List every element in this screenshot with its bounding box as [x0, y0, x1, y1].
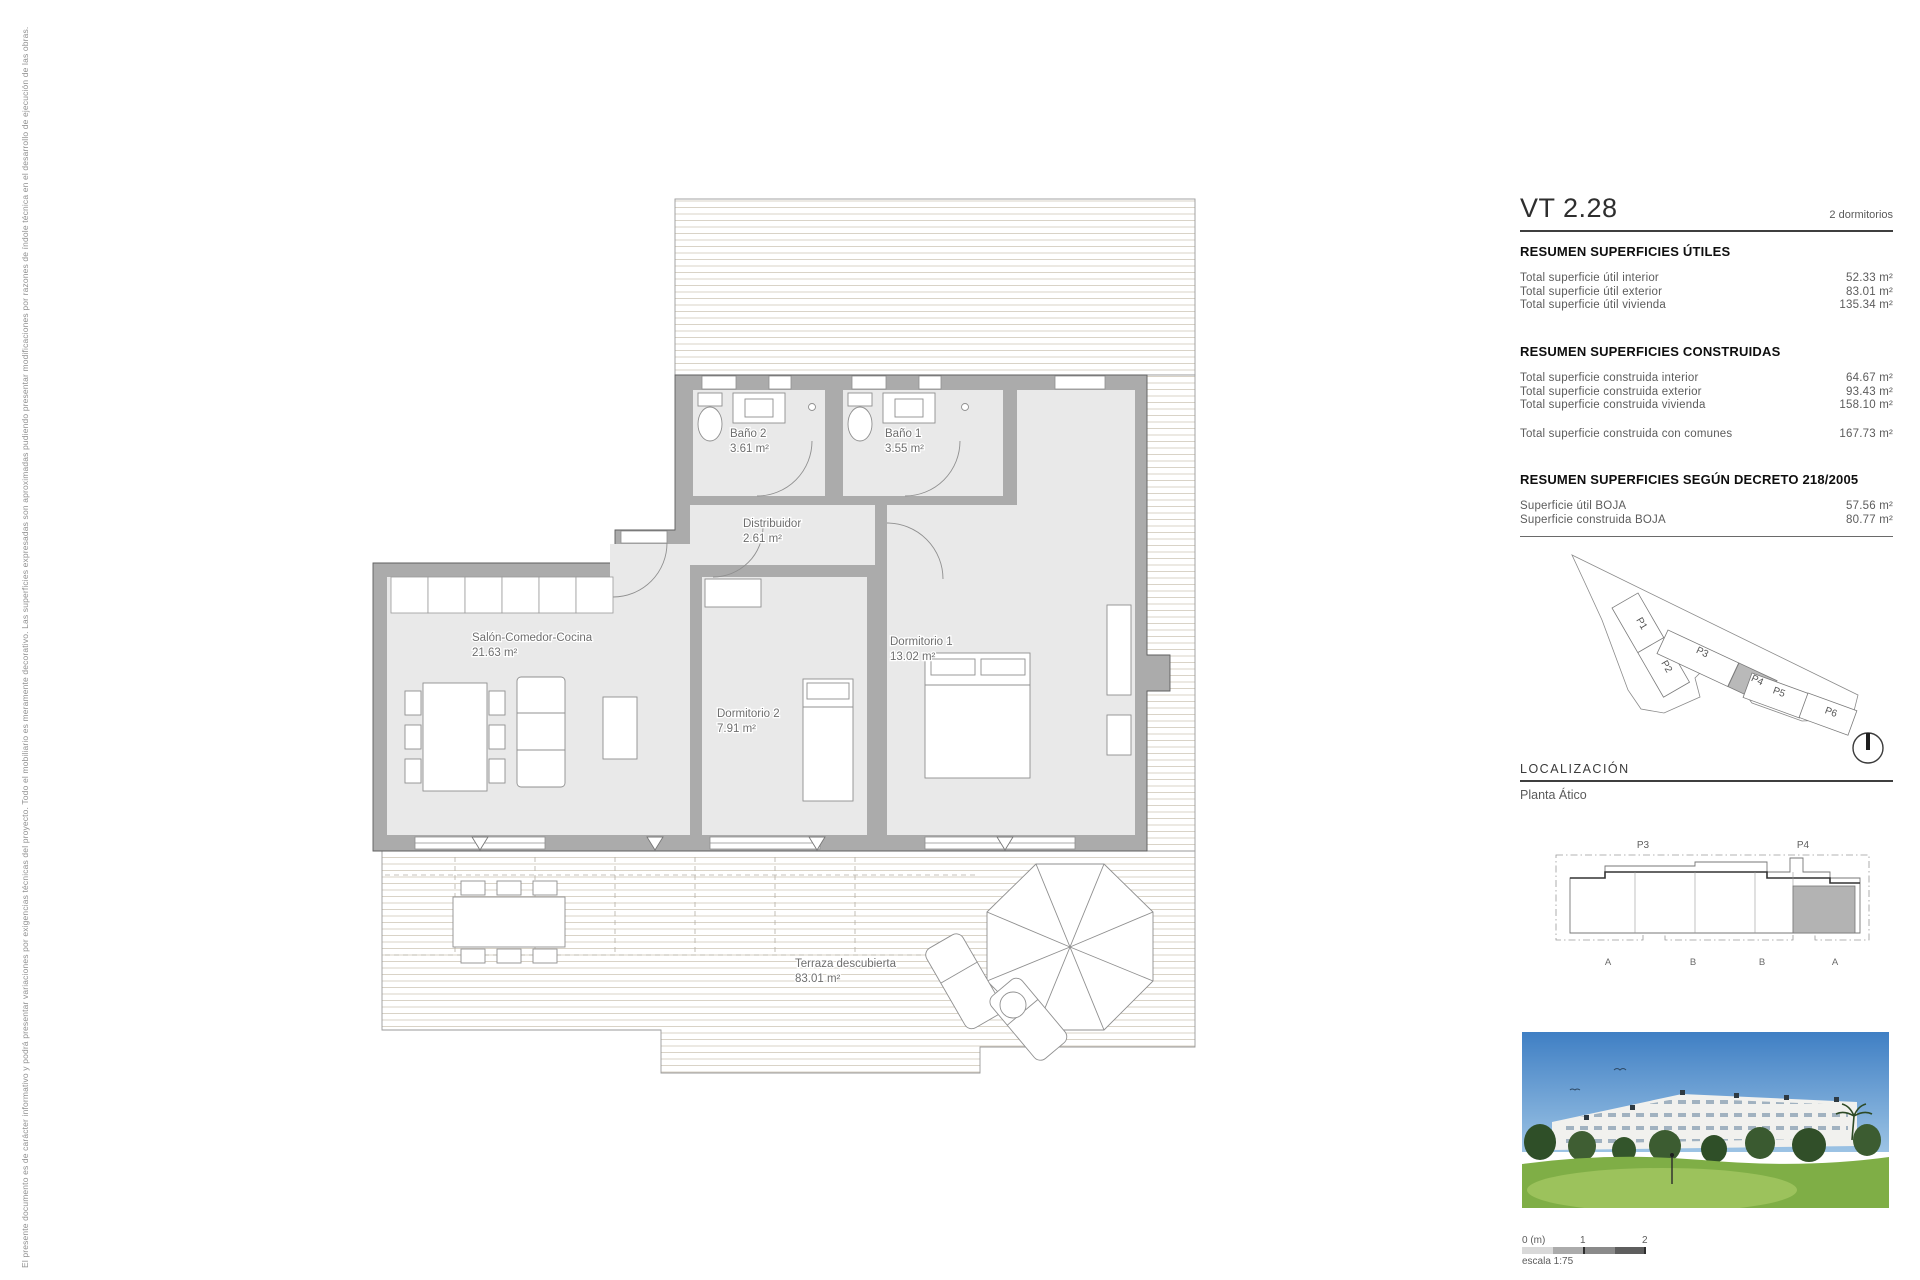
label-dormitorio2-name: Dormitorio 2: [717, 708, 780, 720]
terrace-right-strip: [1147, 375, 1195, 851]
localizacion-title: LOCALIZACIÓN: [1520, 762, 1630, 776]
construidas-rows: Total superficie construida interior64.6…: [1520, 372, 1893, 413]
row-label: Total superficie útil interior: [1520, 272, 1659, 286]
block-label-p4: P4: [1797, 840, 1810, 851]
kitchen-cabinets: [391, 577, 613, 613]
table-row: Superficie construida BOJA80.77 m²: [1520, 514, 1893, 528]
row-label: Superficie útil BOJA: [1520, 500, 1626, 514]
row-label: Total superficie construida vivienda: [1520, 399, 1706, 413]
scale-bar-graphic: [1522, 1247, 1648, 1254]
section-label-b2: B: [1759, 957, 1765, 968]
floor-plan: Baño 2 3.61 m² Baño 1 3.55 m² Distribuid…: [365, 185, 1235, 1085]
row-label: Total superficie construida exterior: [1520, 386, 1702, 400]
dining-table: [405, 683, 505, 791]
row-value: 64.67 m²: [1846, 372, 1893, 386]
section-title-decreto: RESUMEN SUPERFICIES SEGÚN DECRETO 218/20…: [1520, 472, 1858, 487]
scale-mid: 1: [1580, 1235, 1586, 1246]
row-label: Superficie construida BOJA: [1520, 514, 1666, 528]
entrance-opening: [621, 531, 667, 543]
room-dormitorio1-closet: [1017, 390, 1135, 505]
label-salon-area: 21.63 m²: [472, 647, 518, 659]
site-key-plan: P1 P2 P3 P4 P5 P6: [1540, 545, 1910, 770]
section-label-a2: A: [1832, 957, 1839, 968]
row-label: Total superficie construida interior: [1520, 372, 1699, 386]
label-dormitorio1-name: Dormitorio 1: [890, 636, 953, 648]
label-bano1-name: Baño 1: [885, 428, 921, 440]
row-value: 57.56 m²: [1846, 500, 1893, 514]
table-row: Total superficie construida interior64.6…: [1520, 372, 1893, 386]
label-dormitorio2-area: 7.91 m²: [717, 723, 756, 735]
row-value: 93.43 m²: [1846, 386, 1893, 400]
row-label: Total superficie útil exterior: [1520, 286, 1662, 300]
label-terraza-name: Terraza descubierta: [795, 958, 897, 970]
row-value: 83.01 m²: [1846, 286, 1893, 300]
outdoor-dining-set: [453, 881, 565, 963]
table-row: Total superficie útil interior52.33 m²: [1520, 272, 1893, 286]
label-bano2-name: Baño 2: [730, 428, 766, 440]
localizacion-floor: Planta Ático: [1520, 788, 1587, 802]
table-row: Superficie útil BOJA57.56 m²: [1520, 500, 1893, 514]
row-value: 135.34 m²: [1839, 299, 1893, 313]
tv-cabinet: [603, 697, 637, 759]
project-photo: [1522, 1032, 1889, 1208]
section-label-a1: A: [1605, 957, 1612, 968]
highlighted-unit: [1793, 886, 1855, 933]
scale-caption: escala 1:75: [1522, 1256, 1650, 1267]
row-value: 52.33 m²: [1846, 272, 1893, 286]
label-salon-name: Salón-Comedor-Cocina: [472, 632, 593, 644]
label-distribuidor-area: 2.61 m²: [743, 533, 782, 545]
scale-bar: 0 (m) 1 2 escala 1:75: [1522, 1235, 1650, 1267]
title-rule: [1520, 230, 1893, 232]
scale-zero: 0 (m): [1522, 1235, 1545, 1246]
section-label-b1: B: [1690, 957, 1696, 968]
label-distribuidor-name: Distribuidor: [743, 518, 801, 530]
toilet-icon: [698, 393, 722, 406]
decreto-rows: Superficie útil BOJA57.56 m² Superficie …: [1520, 500, 1893, 527]
row-value: 158.10 m²: [1839, 399, 1893, 413]
label-dormitorio1-area: 13.02 m²: [890, 651, 936, 663]
section-title-construidas: RESUMEN SUPERFICIES CONSTRUIDAS: [1520, 344, 1780, 359]
legal-disclaimer: El presente documento es de carácter inf…: [20, 27, 30, 1268]
utiles-rows: Total superficie útil interior52.33 m² T…: [1520, 272, 1893, 313]
unit-type: 2 dormitorios: [1520, 209, 1893, 221]
table-row: Total superficie construida con comunes1…: [1520, 428, 1893, 442]
room-distribuidor: [690, 505, 875, 565]
sofa: [517, 677, 565, 787]
table-row: Total superficie construida vivienda158.…: [1520, 399, 1893, 413]
construidas-total: Total superficie construida con comunes1…: [1520, 428, 1893, 442]
shower-drain-icon: [809, 404, 816, 411]
terrace-top: [675, 199, 1195, 375]
row-value: 167.73 m²: [1839, 428, 1893, 442]
table-row: Total superficie construida exterior93.4…: [1520, 386, 1893, 400]
label-bano1-area: 3.55 m²: [885, 443, 924, 455]
scale-end: 2: [1642, 1235, 1648, 1246]
row-label: Total superficie construida con comunes: [1520, 428, 1732, 442]
block-label-p3: P3: [1637, 840, 1650, 851]
scale-numbers: 0 (m) 1 2: [1522, 1235, 1650, 1246]
table-row: Total superficie útil vivienda135.34 m²: [1520, 299, 1893, 313]
decreto-rule: [1520, 536, 1893, 537]
room-hall: [610, 544, 690, 835]
north-compass-icon: [1853, 733, 1883, 763]
localizacion-rule: [1520, 780, 1893, 782]
table-row: Total superficie útil exterior83.01 m²: [1520, 286, 1893, 300]
row-value: 80.77 m²: [1846, 514, 1893, 528]
section-title-utiles: RESUMEN SUPERFICIES ÚTILES: [1520, 244, 1730, 259]
row-label: Total superficie útil vivienda: [1520, 299, 1666, 313]
label-terraza-area: 83.01 m²: [795, 973, 841, 985]
label-bano2-area: 3.61 m²: [730, 443, 769, 455]
block-location-diagram: P3 P4 A B B A: [1545, 828, 1895, 978]
